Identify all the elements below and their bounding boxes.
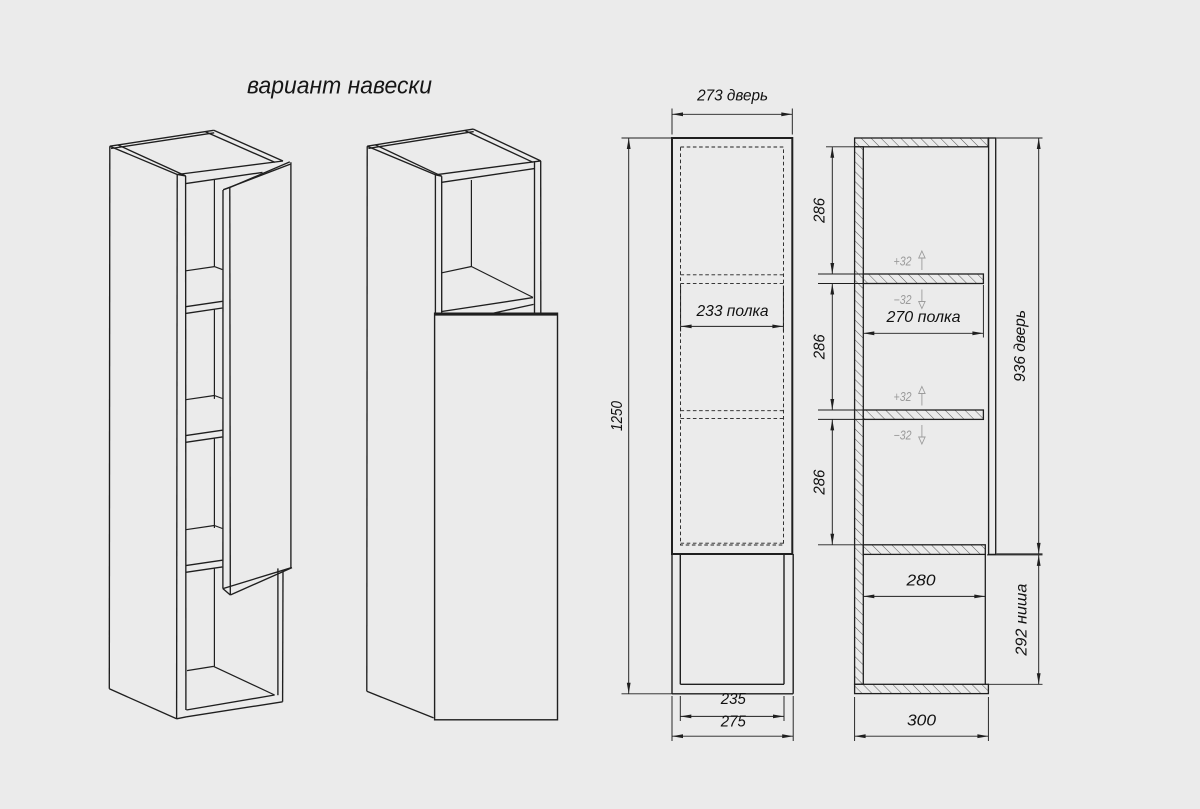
- svg-text:1250: 1250: [609, 401, 626, 431]
- svg-text:233 полка: 233 полка: [696, 303, 769, 320]
- svg-text:275: 275: [720, 714, 746, 731]
- svg-text:+32: +32: [894, 390, 912, 404]
- svg-text:235: 235: [720, 691, 746, 708]
- svg-text:−32: −32: [894, 429, 912, 443]
- svg-text:+32: +32: [894, 255, 912, 269]
- svg-text:270 полка: 270 полка: [885, 309, 960, 326]
- svg-text:286: 286: [811, 334, 828, 360]
- svg-text:292 ниша: 292 ниша: [1013, 584, 1030, 657]
- svg-text:286: 286: [811, 470, 828, 496]
- svg-text:273 дверь: 273 дверь: [696, 88, 768, 105]
- svg-text:−32: −32: [894, 293, 912, 307]
- svg-text:936 дверь: 936 дверь: [1012, 310, 1029, 382]
- svg-text:286: 286: [811, 198, 828, 224]
- svg-text:280: 280: [905, 573, 935, 590]
- svg-text:вариант навески: вариант навески: [247, 73, 432, 100]
- svg-text:300: 300: [907, 713, 936, 730]
